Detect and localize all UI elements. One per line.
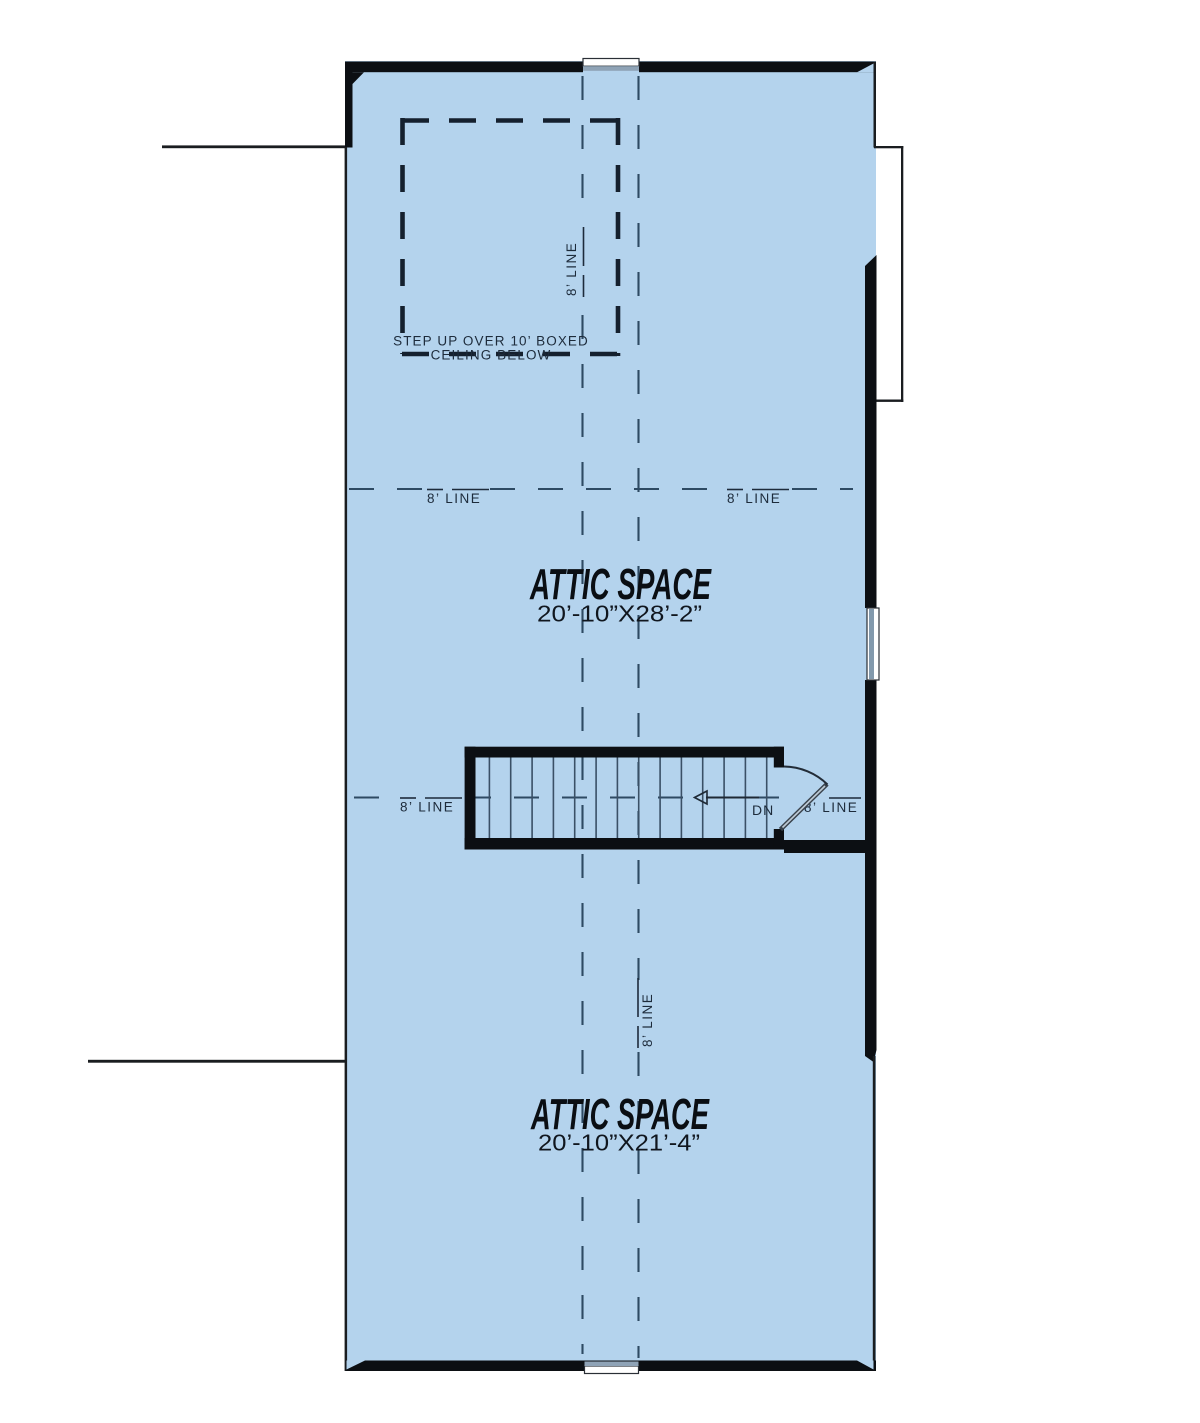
svg-text:STEP UP OVER 10’ BOXED: STEP UP OVER 10’ BOXED xyxy=(393,334,589,349)
svg-text:8’ LINE: 8’ LINE xyxy=(427,491,481,506)
svg-text:DN: DN xyxy=(752,802,774,818)
svg-text:8’ LINE: 8’ LINE xyxy=(640,993,655,1047)
svg-text:8’ LINE: 8’ LINE xyxy=(400,800,454,815)
svg-text:20’-10”X21’-4”: 20’-10”X21’-4” xyxy=(538,1130,700,1156)
svg-text:8’ LINE: 8’ LINE xyxy=(804,800,858,815)
svg-text:8’ LINE: 8’ LINE xyxy=(564,242,579,296)
svg-text:CEILING BELOW: CEILING BELOW xyxy=(431,348,552,363)
svg-text:20’-10”X28’-2”: 20’-10”X28’-2” xyxy=(537,601,702,627)
svg-text:8’ LINE: 8’ LINE xyxy=(727,491,781,506)
